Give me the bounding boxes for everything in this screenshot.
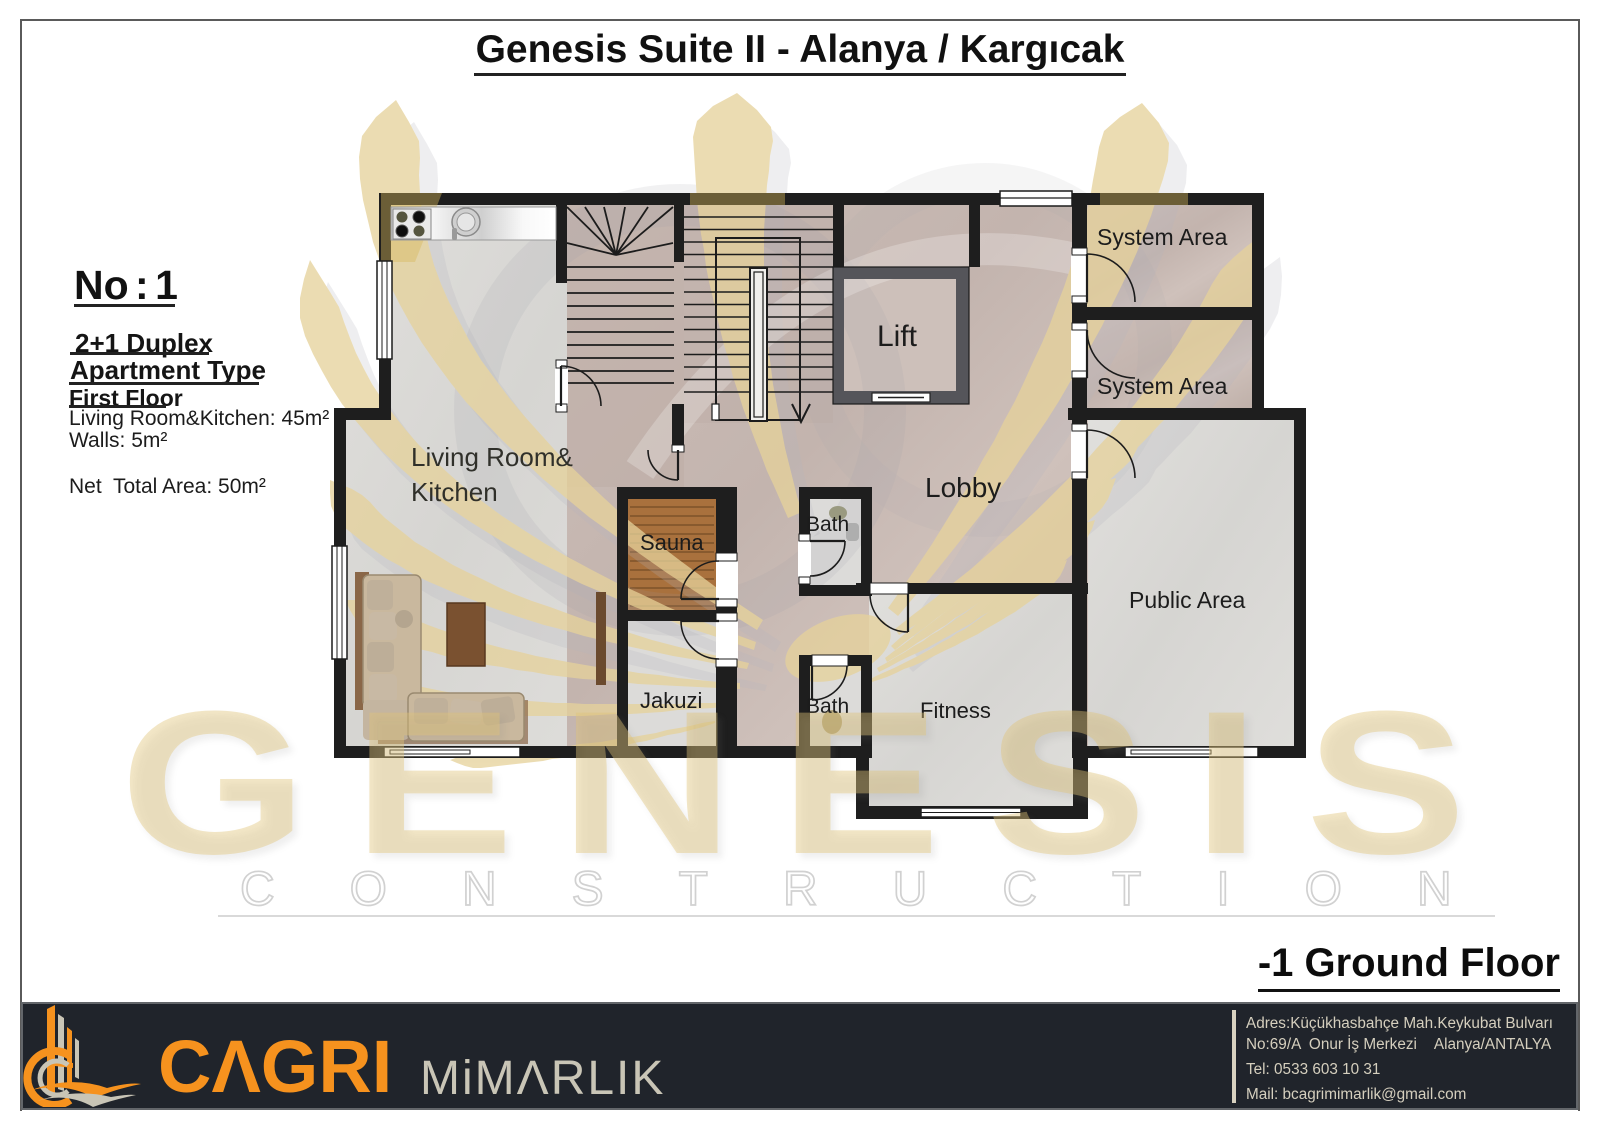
svg-text:System Area: System Area bbox=[1097, 373, 1228, 399]
svg-text:Sauna: Sauna bbox=[640, 530, 704, 555]
svg-text:System Area: System Area bbox=[1097, 224, 1228, 250]
svg-text:Kitchen: Kitchen bbox=[411, 477, 498, 507]
svg-text:Public Area: Public Area bbox=[1129, 587, 1246, 613]
svg-text:Lobby: Lobby bbox=[925, 472, 1001, 503]
svg-text:Living Room&: Living Room& bbox=[411, 442, 573, 472]
svg-text:Bath: Bath bbox=[806, 513, 849, 536]
svg-text:Lift: Lift bbox=[877, 320, 918, 353]
